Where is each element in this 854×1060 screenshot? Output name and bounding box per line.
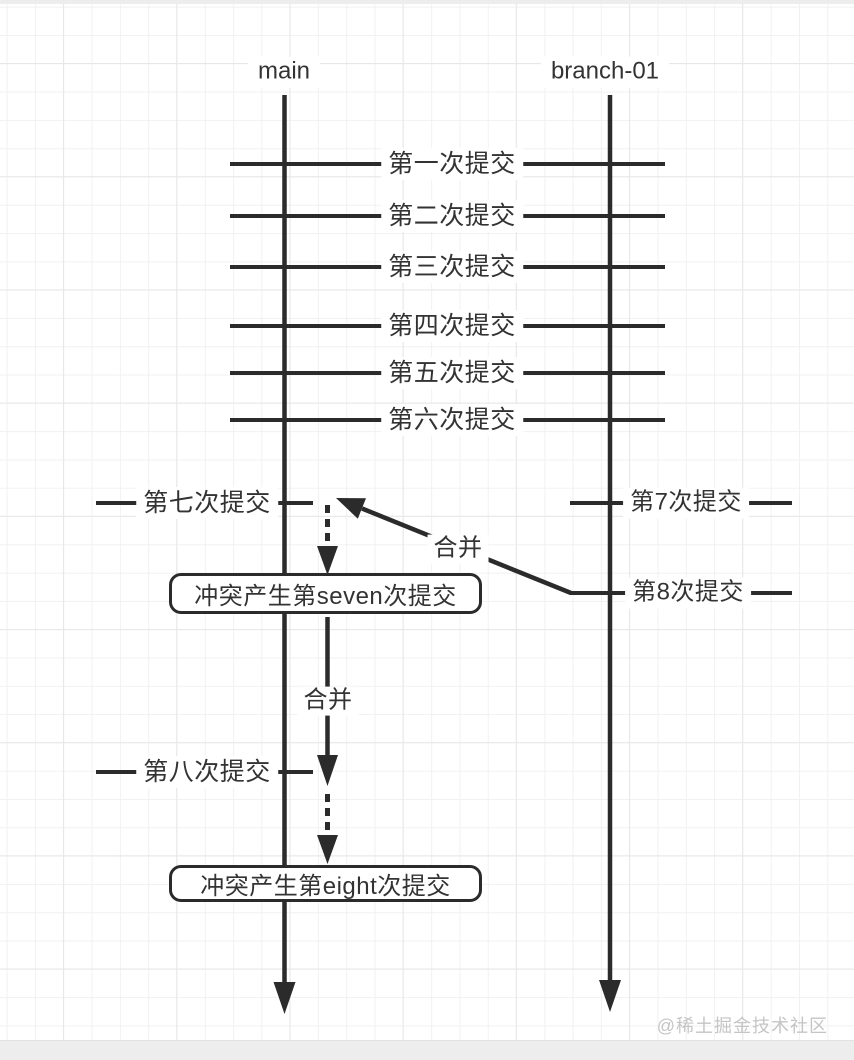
dotted-arrow-1-arrowhead-icon — [317, 546, 338, 575]
merge-1-label: 合并 — [428, 535, 489, 564]
branch01-commit7-label: 第7次提交 — [623, 488, 749, 519]
main-commit8-label: 第八次提交 — [136, 756, 278, 788]
merge-2-arrowhead-icon — [317, 755, 338, 786]
main-commit7-label: 第七次提交 — [136, 487, 278, 519]
branch-title-branch01: branch-01 — [541, 57, 669, 88]
commit-label-2: 第二次提交 — [381, 200, 523, 232]
commit-label-5: 第五次提交 — [381, 357, 523, 389]
conflict-box-2: 冲突产生第eight次提交 — [169, 865, 482, 902]
merge-1-arrowhead-icon — [336, 498, 366, 519]
branch01-commit8-label: 第8次提交 — [625, 578, 751, 609]
commit-label-4: 第四次提交 — [381, 310, 523, 342]
bottom-edge-band — [0, 1040, 854, 1060]
commit-label-3: 第三次提交 — [381, 251, 523, 283]
git-branch-diagram: main branch-01 第一次提交 第二次提交 第三次提交 第四次提交 第… — [0, 0, 854, 1060]
dotted-arrow-2-arrowhead-icon — [317, 835, 338, 864]
merge-2-label: 合并 — [298, 687, 359, 716]
commit-label-1: 第一次提交 — [381, 148, 523, 180]
branch01-arrowhead-icon — [599, 980, 621, 1012]
branch-title-main: main — [248, 57, 320, 88]
conflict-box-1: 冲突产生第seven次提交 — [169, 573, 482, 614]
watermark: @稀土掘金技术社区 — [657, 1012, 828, 1038]
commit-label-6: 第六次提交 — [381, 404, 523, 436]
main-branch-arrowhead-icon — [274, 982, 296, 1014]
